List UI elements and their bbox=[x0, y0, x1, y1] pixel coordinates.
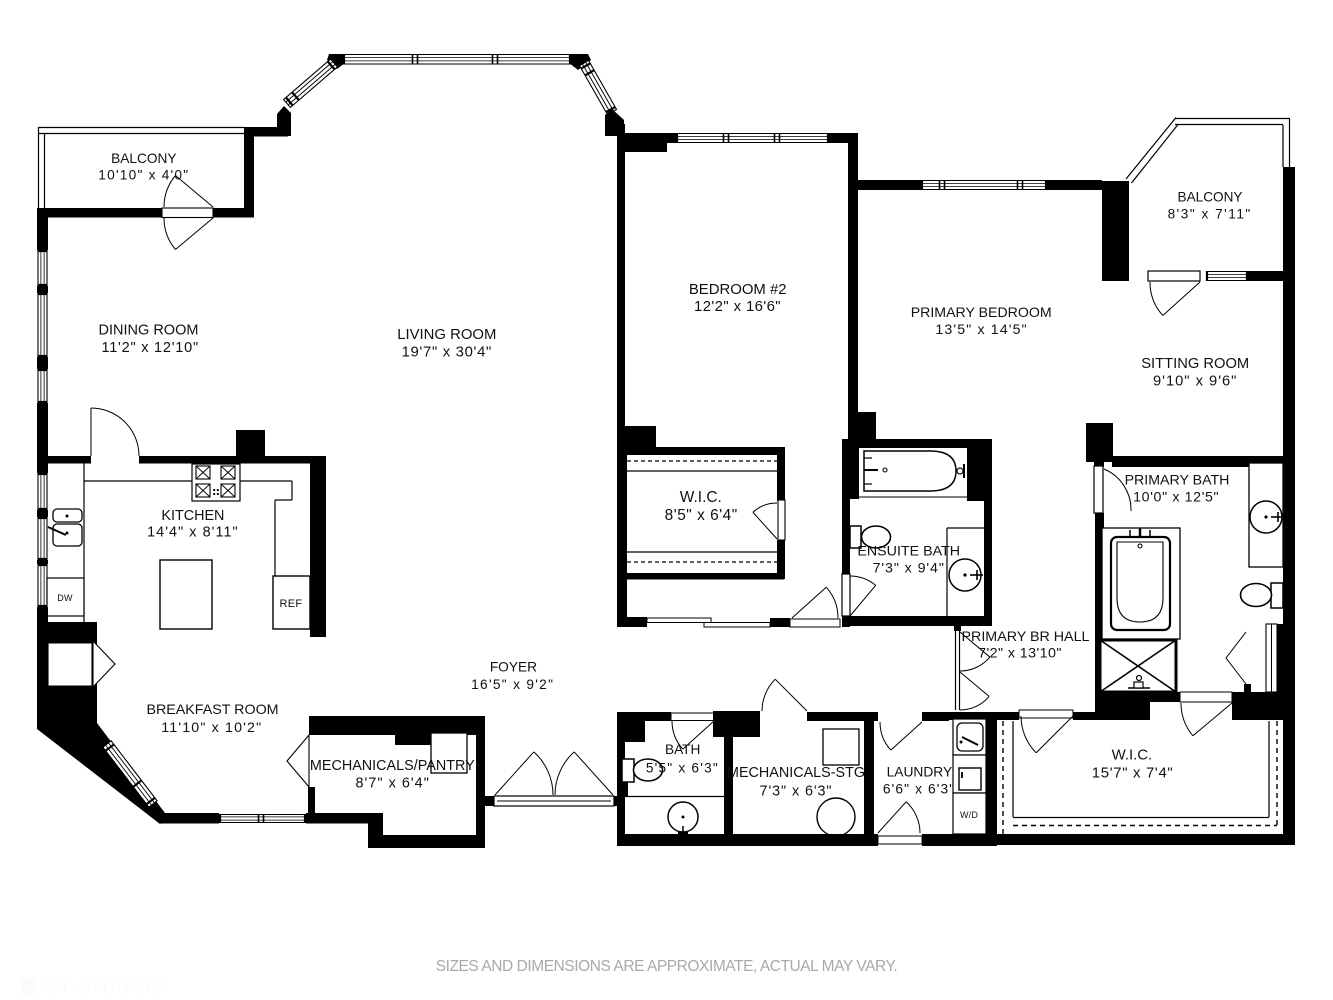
svg-text:10'10" x 4'0": 10'10" x 4'0" bbox=[98, 167, 189, 182]
svg-text:6'6" x 6'3": 6'6" x 6'3" bbox=[883, 782, 955, 797]
svg-text:BALCONY: BALCONY bbox=[111, 151, 176, 166]
svg-text:19'7" x 30'4": 19'7" x 30'4" bbox=[402, 345, 492, 361]
svg-text:LAUNDRY: LAUNDRY bbox=[887, 765, 953, 780]
svg-text:SIZES AND DIMENSIONS ARE APPRO: SIZES AND DIMENSIONS ARE APPROXIMATE, AC… bbox=[436, 958, 898, 975]
svg-text:UNIT STUDIOS: UNIT STUDIOS bbox=[26, 977, 165, 997]
svg-text:5'5" x 6'3": 5'5" x 6'3" bbox=[646, 761, 719, 776]
svg-text:7'2" x 13'10": 7'2" x 13'10" bbox=[978, 646, 1062, 662]
svg-text:7'3" x 9'4": 7'3" x 9'4" bbox=[873, 561, 945, 577]
svg-text:DW: DW bbox=[57, 593, 73, 603]
svg-text:16'5" x 9'2": 16'5" x 9'2" bbox=[471, 677, 554, 692]
svg-text:8'7" x 6'4": 8'7" x 6'4" bbox=[356, 776, 430, 792]
svg-text:12'2" x 16'6": 12'2" x 16'6" bbox=[694, 299, 781, 315]
svg-text:MECHANICALS/PANTRY: MECHANICALS/PANTRY bbox=[310, 758, 475, 774]
svg-text:15'7" x 7'4": 15'7" x 7'4" bbox=[1092, 766, 1174, 782]
svg-text:PRIMARY BR HALL: PRIMARY BR HALL bbox=[962, 629, 1090, 645]
svg-text:BREAKFAST ROOM: BREAKFAST ROOM bbox=[146, 702, 278, 718]
svg-text:10'0" x 12'5": 10'0" x 12'5" bbox=[1133, 490, 1219, 506]
svg-text:KITCHEN: KITCHEN bbox=[161, 508, 224, 524]
svg-text:8'3" x 7'11": 8'3" x 7'11" bbox=[1168, 207, 1252, 222]
svg-text:W.I.C.: W.I.C. bbox=[1112, 748, 1153, 764]
svg-text:W/D: W/D bbox=[960, 810, 978, 820]
svg-text:LIVING ROOM: LIVING ROOM bbox=[397, 327, 496, 343]
svg-text:W.I.C.: W.I.C. bbox=[680, 489, 722, 506]
svg-text:9'10" x 9'6": 9'10" x 9'6" bbox=[1153, 374, 1237, 390]
svg-text:13'5" x 14'5": 13'5" x 14'5" bbox=[935, 321, 1028, 337]
svg-text:8'5" x 6'4": 8'5" x 6'4" bbox=[665, 507, 738, 524]
svg-text:DINING ROOM: DINING ROOM bbox=[99, 323, 199, 339]
svg-text:BEDROOM #2: BEDROOM #2 bbox=[689, 282, 787, 298]
svg-text:SITTING ROOM: SITTING ROOM bbox=[1141, 356, 1249, 372]
svg-text:11'10" x 10'2": 11'10" x 10'2" bbox=[161, 720, 262, 736]
svg-text:11'2" x 12'10": 11'2" x 12'10" bbox=[101, 340, 199, 356]
svg-text:REF: REF bbox=[280, 598, 303, 610]
svg-text:FOYER: FOYER bbox=[490, 660, 537, 675]
svg-text:BATH: BATH bbox=[665, 742, 700, 757]
svg-text:PRIMARY BEDROOM: PRIMARY BEDROOM bbox=[911, 304, 1052, 320]
svg-text:MECHANICALS-STG: MECHANICALS-STG bbox=[727, 765, 865, 781]
svg-text:BALCONY: BALCONY bbox=[1178, 189, 1243, 204]
svg-text:14'4" x 8'11": 14'4" x 8'11" bbox=[147, 525, 239, 541]
svg-text:PRIMARY BATH: PRIMARY BATH bbox=[1125, 473, 1230, 489]
svg-text:7'3" x 6'3": 7'3" x 6'3" bbox=[760, 784, 833, 800]
svg-text:ENSUITE BATH: ENSUITE BATH bbox=[857, 544, 960, 560]
